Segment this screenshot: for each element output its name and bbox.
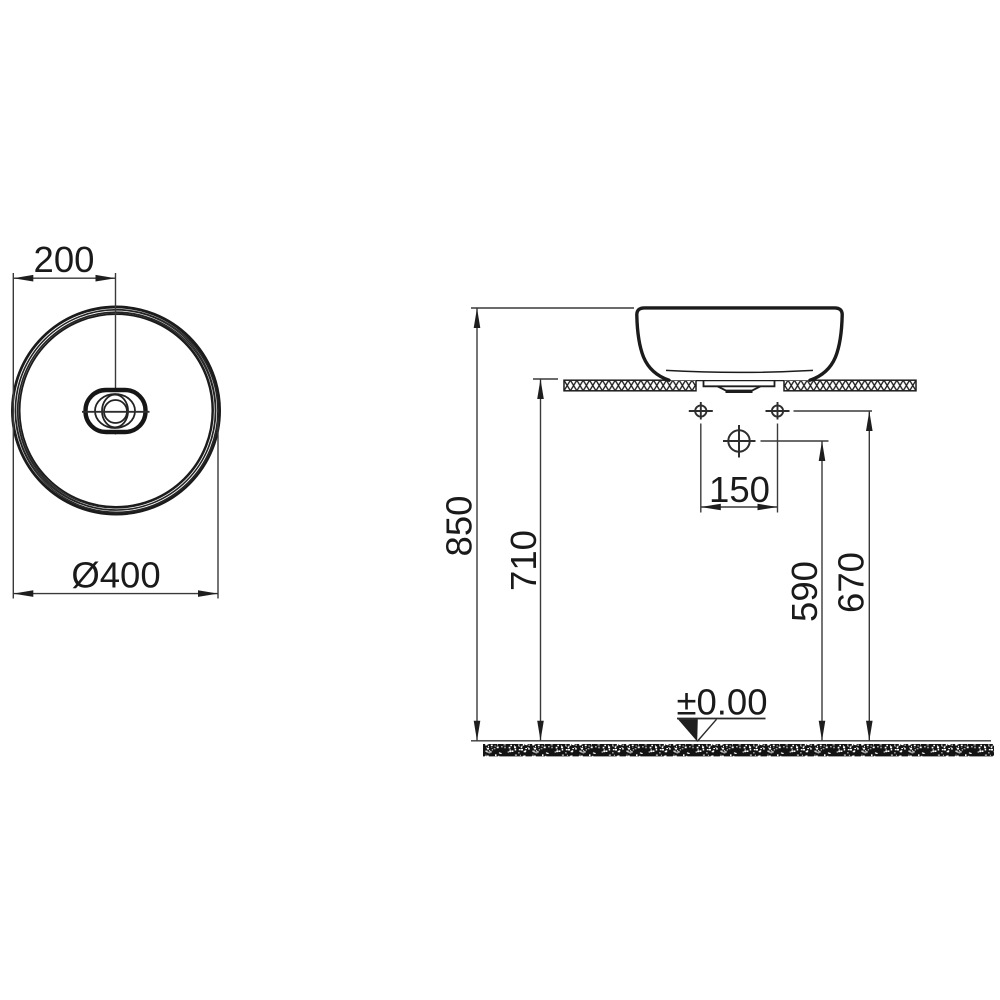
svg-text:590: 590 bbox=[784, 561, 825, 622]
svg-text:710: 710 bbox=[503, 530, 544, 591]
svg-text:200: 200 bbox=[34, 239, 95, 280]
svg-text:Ø400: Ø400 bbox=[71, 555, 160, 596]
svg-text:670: 670 bbox=[831, 552, 872, 613]
svg-text:±0.00: ±0.00 bbox=[676, 682, 767, 723]
svg-text:150: 150 bbox=[709, 469, 770, 510]
svg-text:850: 850 bbox=[439, 496, 480, 557]
